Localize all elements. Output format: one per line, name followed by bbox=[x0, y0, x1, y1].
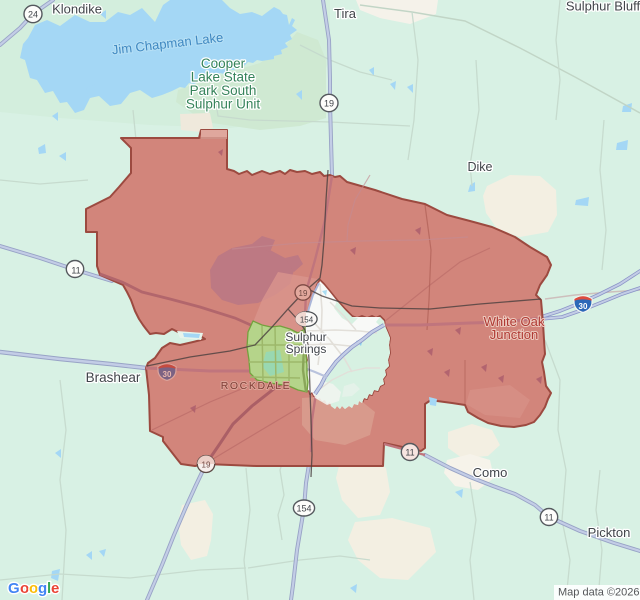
svg-text:Tira: Tira bbox=[334, 6, 357, 21]
svg-text:Sulphur Unit: Sulphur Unit bbox=[186, 97, 261, 112]
svg-text:11: 11 bbox=[405, 448, 414, 458]
svg-text:Map data ©2026: Map data ©2026 bbox=[558, 587, 640, 599]
svg-text:Dike: Dike bbox=[467, 160, 492, 174]
svg-text:154: 154 bbox=[300, 315, 314, 324]
svg-text:e: e bbox=[51, 580, 60, 597]
svg-text:Como: Como bbox=[473, 465, 508, 480]
svg-text:11: 11 bbox=[544, 513, 553, 523]
svg-text:Junction: Junction bbox=[490, 327, 538, 342]
svg-text:Brashear: Brashear bbox=[86, 370, 141, 385]
svg-text:11: 11 bbox=[71, 266, 80, 276]
svg-text:19: 19 bbox=[202, 461, 211, 470]
svg-text:30: 30 bbox=[579, 302, 588, 311]
svg-text:Sulphur Bluff: Sulphur Bluff bbox=[566, 0, 640, 14]
svg-text:Pickton: Pickton bbox=[588, 525, 631, 540]
svg-text:30: 30 bbox=[163, 370, 172, 379]
svg-text:G: G bbox=[8, 580, 20, 597]
svg-text:Klondike: Klondike bbox=[52, 2, 102, 17]
svg-text:ROCKDALE: ROCKDALE bbox=[221, 380, 292, 392]
svg-text:19: 19 bbox=[299, 289, 308, 298]
svg-text:Springs: Springs bbox=[286, 342, 327, 356]
svg-text:24: 24 bbox=[28, 10, 38, 20]
svg-text:19: 19 bbox=[324, 99, 334, 109]
svg-text:154: 154 bbox=[296, 504, 311, 514]
